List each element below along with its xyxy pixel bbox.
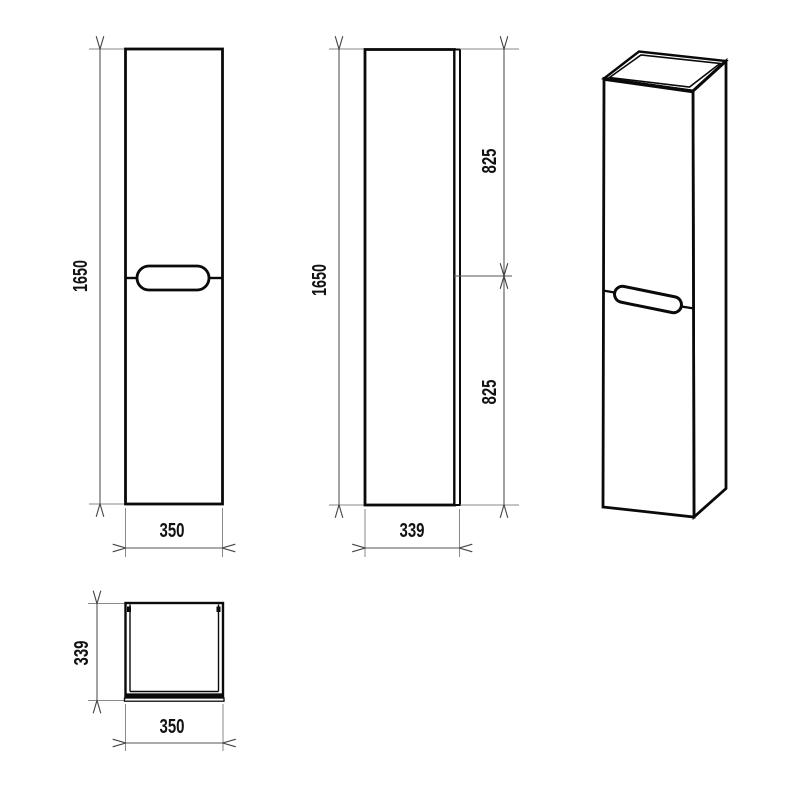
top-carcass-outline [126, 603, 224, 697]
side-door-panel [455, 50, 461, 506]
side-lower-section-dimension: 825 [479, 380, 501, 405]
perspective-view [603, 52, 726, 518]
top-view: 339 350 [71, 603, 224, 751]
front-height-dimension: 1650 [70, 260, 92, 292]
cabinet-technical-drawing: 1650 350 1650 825 825 339 [0, 0, 800, 800]
corner-bracket [217, 607, 221, 613]
drawing-canvas: 1650 350 1650 825 825 339 [0, 0, 800, 800]
cabinet-side-face [693, 61, 726, 517]
front-view: 1650 350 [70, 49, 223, 557]
side-depth-dimension: 339 [400, 520, 425, 542]
side-cabinet-body [365, 50, 455, 506]
front-width-dimension: 350 [160, 520, 185, 542]
door-panel-top-view [125, 698, 225, 701]
corner-bracket [127, 607, 131, 613]
side-height-dimension: 1650 [309, 264, 331, 296]
top-depth-dimension: 339 [71, 641, 93, 666]
top-width-dimension: 350 [160, 716, 185, 738]
door-handle [137, 266, 209, 290]
side-upper-section-dimension: 825 [479, 149, 501, 174]
side-view: 1650 825 825 339 [309, 49, 519, 557]
